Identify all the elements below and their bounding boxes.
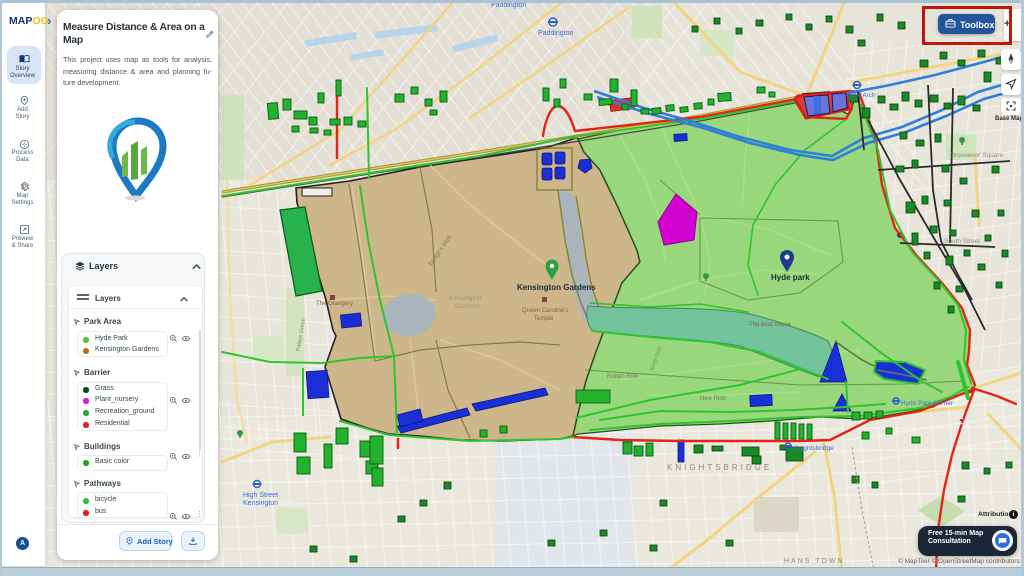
svg-text:The Orangery: The Orangery bbox=[316, 301, 353, 307]
svg-text:Queen Caroline's: Queen Caroline's bbox=[522, 308, 568, 314]
svg-text:New Ride: New Ride bbox=[700, 396, 727, 402]
svg-text:HANS TOWN: HANS TOWN bbox=[784, 558, 845, 565]
svg-text:South Street: South Street bbox=[944, 238, 980, 245]
svg-text:Gardens: Gardens bbox=[455, 303, 481, 310]
svg-text:Rotten Row: Rotten Row bbox=[607, 374, 639, 380]
svg-text:Hyde park: Hyde park bbox=[771, 273, 810, 282]
svg-text:Grosvenor Square: Grosvenor Square bbox=[950, 152, 1003, 159]
svg-text:High Street: High Street bbox=[243, 492, 278, 499]
svg-text:Kensington: Kensington bbox=[243, 500, 278, 507]
svg-text:The boat house: The boat house bbox=[749, 322, 791, 328]
svg-text:Paddington: Paddington bbox=[491, 2, 527, 9]
svg-text:Knightsbridge: Knightsbridge bbox=[794, 445, 834, 452]
svg-text:Marble Arch: Marble Arch bbox=[843, 93, 875, 99]
svg-text:Kensington Gardens: Kensington Gardens bbox=[517, 283, 596, 292]
svg-text:Paddington: Paddington bbox=[538, 30, 574, 37]
svg-text:Hyde Park Corner: Hyde Park Corner bbox=[901, 400, 954, 407]
svg-text:Temple: Temple bbox=[534, 316, 554, 322]
svg-text:Kensington: Kensington bbox=[449, 295, 482, 302]
svg-text:🍷: 🍷 bbox=[957, 416, 966, 425]
svg-text:KNIGHTSBRIDGE: KNIGHTSBRIDGE bbox=[667, 463, 772, 472]
